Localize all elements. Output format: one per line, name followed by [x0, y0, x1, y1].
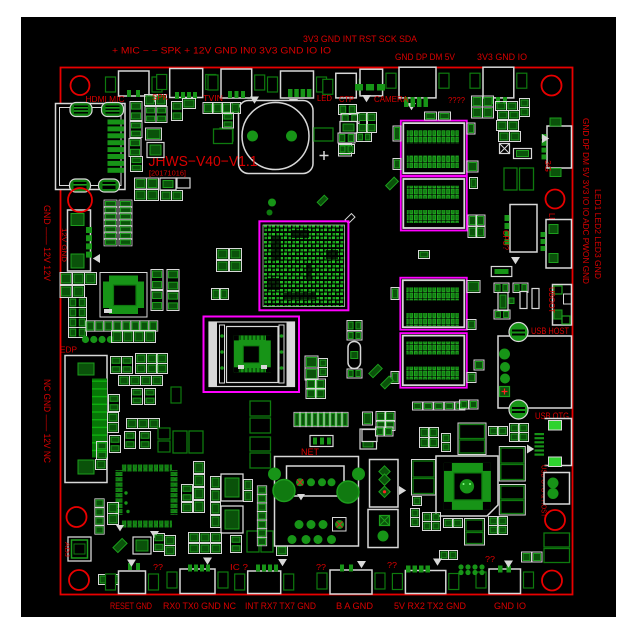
svg-text:TVIN: TVIN: [203, 93, 223, 103]
svg-text:HDMI MIC: HDMI MIC: [86, 94, 125, 104]
svg-text:GND DP DM 5V: GND DP DM 5V: [395, 52, 455, 62]
svg-text:LED: LED: [317, 93, 332, 103]
svg-text:??: ??: [387, 560, 397, 570]
svg-text:3V3 GND INT RST SCK SDA: 3V3 GND INT RST SCK SDA: [303, 34, 417, 44]
svg-text:SPK: SPK: [152, 92, 168, 102]
svg-text:GND IO: GND IO: [494, 601, 526, 611]
svg-text:GND DP DM 5V 3V3 IO IO ADC PWO: GND DP DM 5V 3V3 IO IO ADC PWON GND: [581, 118, 590, 284]
svg-text:LED1 LED2 LED3 GND: LED1 LED2 LED3 GND: [593, 189, 602, 279]
svg-text:CPU?: CPU?: [501, 230, 510, 251]
svg-text:USB OTG: USB OTG: [535, 411, 569, 421]
svg-text:INT RX7 TX7 GND: INT RX7 TX7 GND: [245, 601, 316, 611]
svg-text:UBOOT: UBOOT: [547, 287, 556, 313]
svg-text:GND —— 12V 12V: GND —— 12V 12V: [42, 205, 52, 281]
svg-text:5V RX2 TX2 GND: 5V RX2 TX2 GND: [394, 601, 466, 611]
svg-text:IC ?: IC ?: [230, 562, 248, 572]
svg-text:3G: 3G: [543, 160, 552, 172]
svg-text:??: ??: [485, 554, 495, 564]
svg-text:12V GND: 12V GND: [60, 228, 66, 263]
svg-text:ADJ: ADJ: [63, 542, 70, 557]
svg-text:NC GND —— 12V NC: NC GND —— 12V NC: [42, 379, 52, 463]
svg-text:+ MIC − − SPK + 12V GND IN0: + MIC − − SPK + 12V GND IN0 3V3 GND IO I…: [112, 46, 331, 56]
svg-text:NET: NET: [301, 447, 320, 457]
svg-text:CAMERA: CAMERA: [374, 94, 408, 104]
svg-text:3V3 GND IO: 3V3 GND IO: [477, 52, 527, 62]
svg-text:??: ??: [153, 562, 163, 572]
svg-text:EDP: EDP: [60, 345, 77, 355]
svg-text:RX0 TX0 GND NC: RX0 TX0 GND NC: [163, 601, 236, 611]
svg-text:RESET GND: RESET GND: [110, 601, 152, 611]
svg-text:USB HOST: USB HOST: [531, 326, 569, 336]
svg-text:CTP: CTP: [339, 94, 354, 104]
svg-text:??: ??: [316, 562, 326, 572]
svg-text:????: ????: [448, 95, 465, 105]
svg-text:[20171016]: [20171016]: [149, 169, 186, 178]
svg-text:B A GND: B A GND: [336, 601, 374, 611]
